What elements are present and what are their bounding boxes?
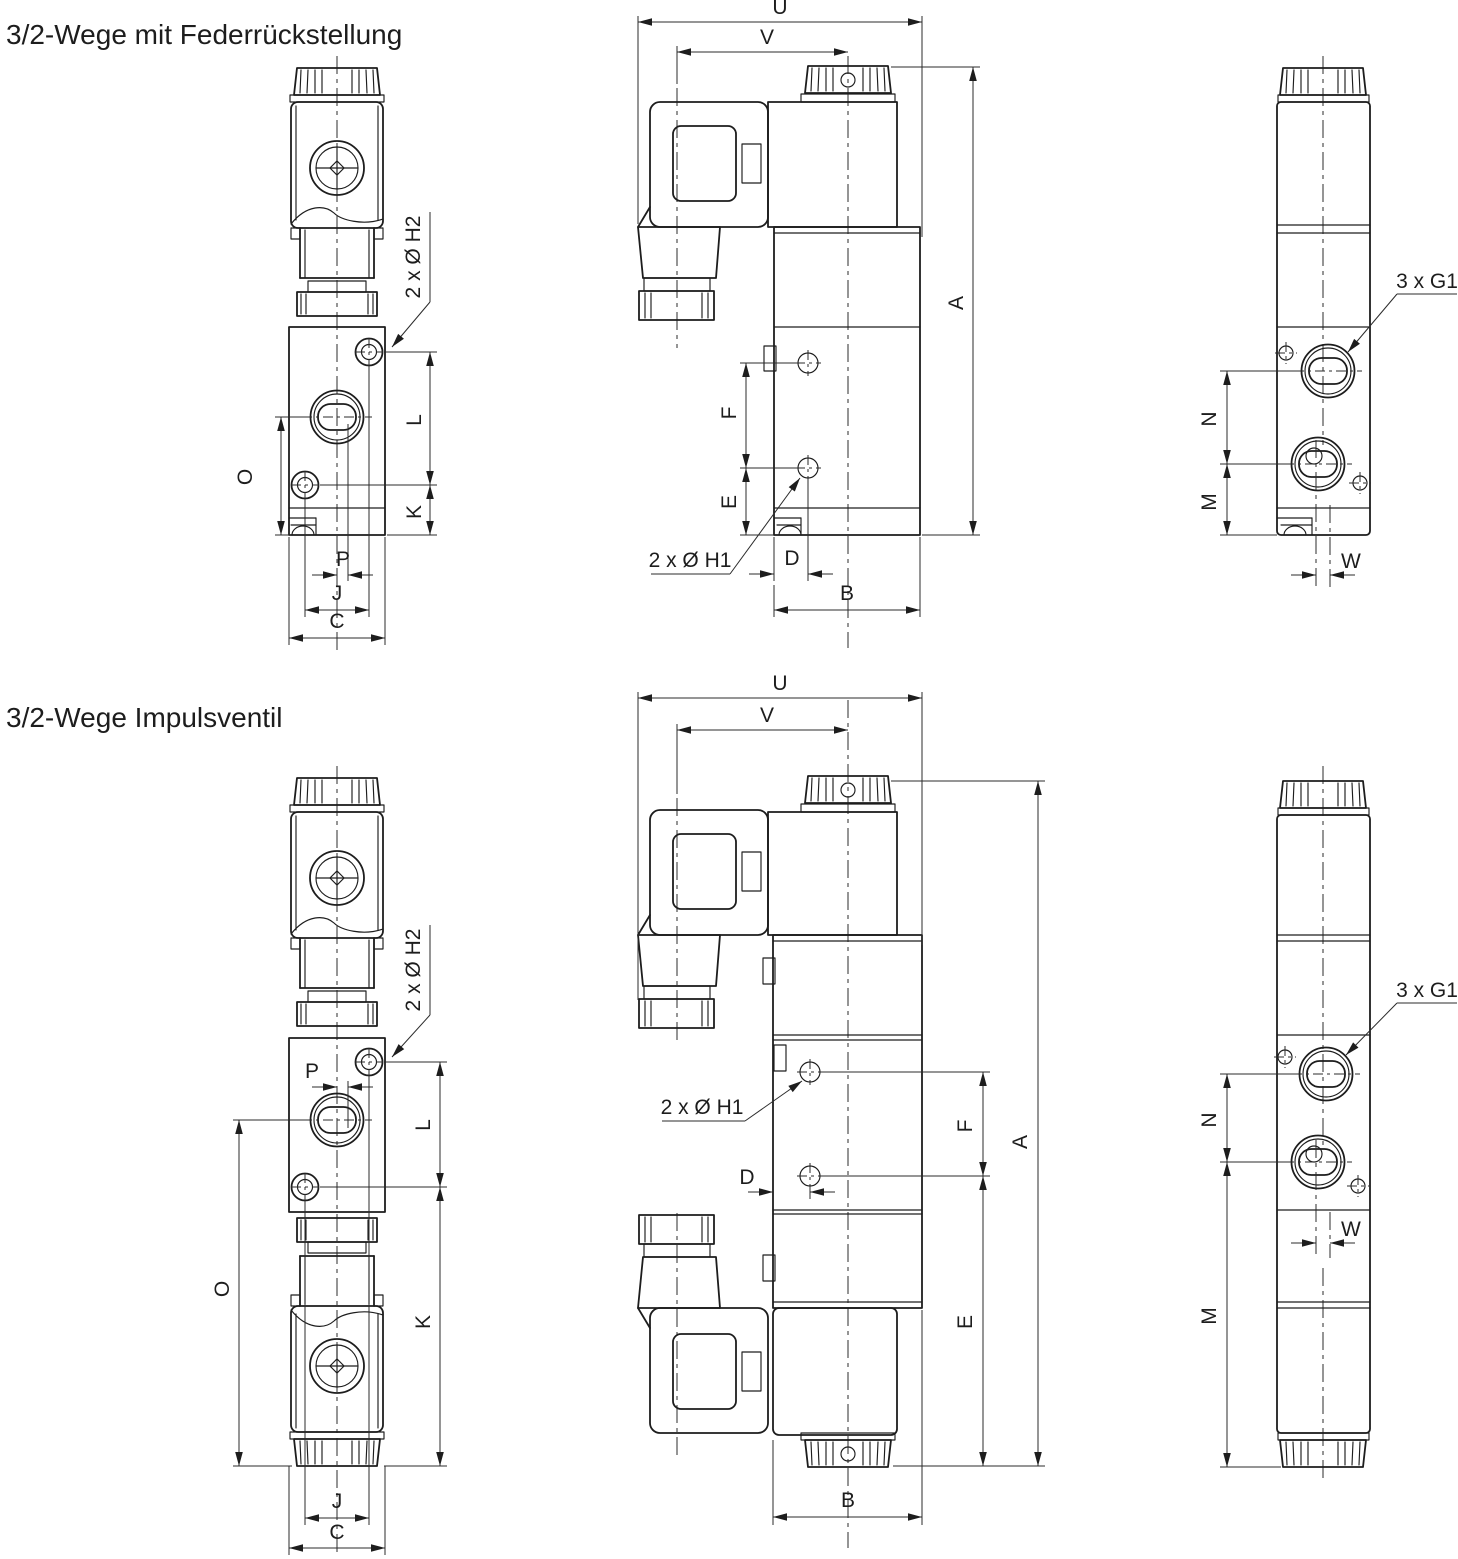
dim-label-a: A (1009, 1135, 1032, 1149)
dim-label-v: V (760, 704, 774, 727)
dim-W: W (1291, 550, 1361, 575)
dim-V: V (677, 704, 848, 794)
dim-O: O (234, 417, 310, 535)
hole-diameter-label: 2 x Ø H2 (402, 216, 425, 299)
dim-label-e: E (718, 495, 741, 509)
side-view-impulse: U V 2 x Ø H1 D F E (638, 672, 1045, 1548)
dim-label-k: K (412, 1315, 435, 1329)
coil (768, 102, 897, 227)
dim-label-p: P (336, 548, 350, 571)
dim-F: F (718, 363, 797, 468)
dim-label-o: O (211, 1281, 234, 1297)
dim-L: L (320, 1062, 447, 1187)
hole-diameter-label: 2 x Ø H1 (649, 549, 732, 572)
callout-H1: 2 x Ø H1 (649, 478, 800, 574)
dim-label-p: P (305, 1060, 319, 1083)
dim-O: O (211, 1120, 310, 1466)
dim-label-b: B (840, 582, 854, 605)
valve-body (774, 227, 920, 535)
technical-drawing: 3/2-Wege mit Federrückstellung 3/2-Wege … (0, 0, 1458, 1559)
section-title-impulse: 3/2-Wege Impulsventil (6, 702, 283, 733)
coil-bottom (773, 1308, 897, 1435)
dim-label-m: M (1198, 1307, 1221, 1325)
callout-H1: 2 x Ø H1 (661, 1081, 802, 1121)
dim-M: M (1198, 1162, 1281, 1467)
dim-U: U (638, 672, 922, 1000)
back-view-impulse: 3 x G1 N M W (1198, 766, 1458, 1480)
dim-V: V (677, 26, 848, 84)
callout-G1: 3 x G1 (1346, 979, 1458, 1055)
dim-D: D (739, 1166, 835, 1199)
dim-W: W (1291, 1218, 1361, 1243)
dim-label-e: E (954, 1315, 977, 1329)
dim-label-b: B (841, 1489, 855, 1512)
dim-label-u: U (772, 672, 787, 695)
dim-K: K (387, 485, 437, 535)
dim-label-o: O (234, 469, 257, 485)
dim-label-m: M (1198, 493, 1221, 511)
dim-label-n: N (1198, 411, 1221, 426)
manual-override (774, 1045, 786, 1071)
din-connector-bottom (638, 1215, 768, 1433)
callout-H2: 2 x Ø H2 (392, 212, 430, 347)
dim-label-l: L (403, 414, 426, 426)
dim-label-f: F (718, 407, 741, 420)
base-slot (779, 526, 801, 535)
section-title-spring-return: 3/2-Wege mit Federrückstellung (6, 19, 402, 50)
dim-label-u: U (772, 0, 787, 19)
dim-F: F (822, 1072, 990, 1176)
dim-label-c: C (329, 610, 344, 633)
callout-G1: 3 x G1 (1348, 270, 1458, 352)
dim-P: P (312, 424, 373, 581)
dim-label-c: C (329, 1521, 344, 1544)
dim-label-j: J (332, 582, 343, 605)
hole-diameter-label: 2 x Ø H2 (402, 929, 425, 1012)
dim-label-f: F (954, 1120, 977, 1133)
dim-label-w: W (1341, 1218, 1361, 1241)
dim-K: K (384, 1187, 447, 1466)
front-view-spring-return: O L K 2 x Ø H2 P J (234, 56, 437, 652)
dim-label-k: K (403, 505, 426, 519)
dim-label-d: D (739, 1166, 754, 1189)
din-connector-top (638, 810, 768, 1028)
dim-N: N (1198, 1074, 1294, 1162)
dim-N: N (1198, 371, 1296, 464)
din-connector (638, 102, 768, 320)
dim-label-a: A (945, 296, 968, 310)
dim-label-d: D (784, 547, 799, 570)
back-view-spring-return: 3 x G1 N M W (1198, 56, 1458, 590)
dim-label-j: J (332, 1490, 343, 1513)
base-slot (292, 526, 314, 535)
dim-label-l: L (412, 1119, 435, 1131)
dim-L: L (320, 352, 437, 485)
dim-E: E (893, 1176, 990, 1466)
dim-M: M (1198, 464, 1277, 535)
dim-A: A (891, 67, 980, 535)
hole-diameter-label: 2 x Ø H1 (661, 1096, 744, 1119)
thread-label: 3 x G1 (1396, 979, 1458, 1002)
dim-label-v: V (760, 26, 774, 49)
side-view-spring-return: U V A F E 2 x Ø H1 (638, 0, 980, 648)
dim-label-n: N (1198, 1112, 1221, 1127)
dim-label-w: W (1341, 550, 1361, 573)
callout-H2: 2 x Ø H2 (392, 925, 430, 1057)
drawing-page: 3/2-Wege mit Federrückstellung 3/2-Wege … (0, 0, 1458, 1559)
thread-label: 3 x G1 (1396, 270, 1458, 293)
coil-top (768, 812, 897, 935)
base-slot (1284, 526, 1306, 535)
front-view-impulse: 2 x Ø H2 P L K O J (211, 766, 447, 1557)
